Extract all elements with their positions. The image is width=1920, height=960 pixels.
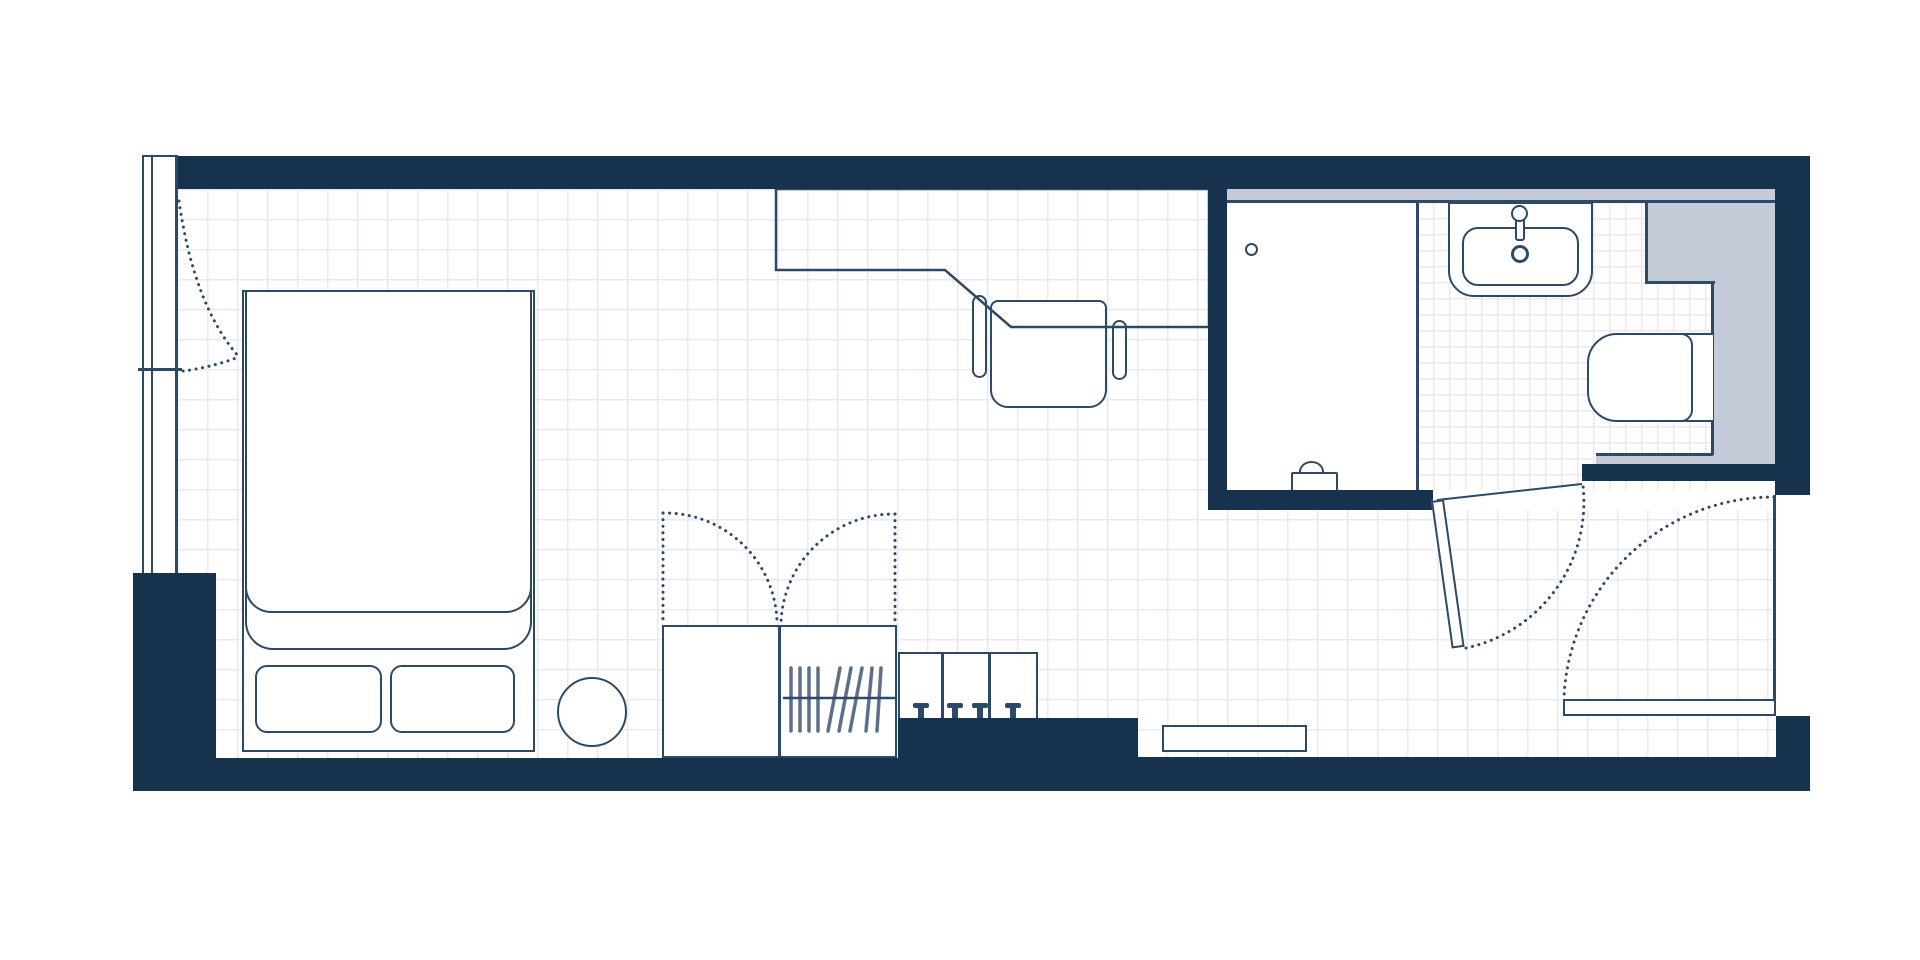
- wall-pier-left: [133, 573, 216, 791]
- wall-bottom-raised: [898, 718, 1138, 791]
- wall-top: [177, 156, 1810, 189]
- bathroom-door-closed-line: [1437, 484, 1582, 500]
- entry-threshold-line: [1773, 495, 1776, 716]
- clothes-hanger-icon: [839, 668, 851, 731]
- window-mullion: [138, 368, 182, 371]
- entry-door-arc: [1564, 497, 1774, 697]
- window-cap-line: [142, 155, 178, 157]
- curtain-swing-arc: [179, 201, 239, 357]
- wardrobe-door-arc-left: [663, 513, 777, 622]
- bathroom-wall-bottom-right: [1582, 464, 1775, 481]
- window-pane-inner: [175, 156, 178, 573]
- entry-door-leaf: [1563, 699, 1776, 716]
- wall-right-upper: [1775, 156, 1810, 495]
- window-pane-middle: [151, 156, 153, 573]
- bathroom-wall-bottom-left: [1208, 490, 1433, 510]
- window-pane-outer: [142, 156, 144, 573]
- curtain-swing-arc-small: [183, 357, 239, 371]
- wardrobe-door-arc-right: [781, 514, 895, 622]
- clothes-hanger-icon: [877, 668, 881, 731]
- wall-bottom-right: [1138, 757, 1810, 791]
- bathroom-wall-left: [1208, 189, 1227, 510]
- clothes-hanger-icon: [828, 668, 840, 731]
- clothes-hanger-icon: [866, 668, 872, 731]
- wall-bottom-left: [216, 758, 898, 791]
- floor-plan-canvas: [0, 0, 1920, 960]
- desk: [776, 189, 1209, 327]
- clothes-hanger-icon: [850, 668, 862, 731]
- bathroom-door-arc: [1466, 486, 1584, 648]
